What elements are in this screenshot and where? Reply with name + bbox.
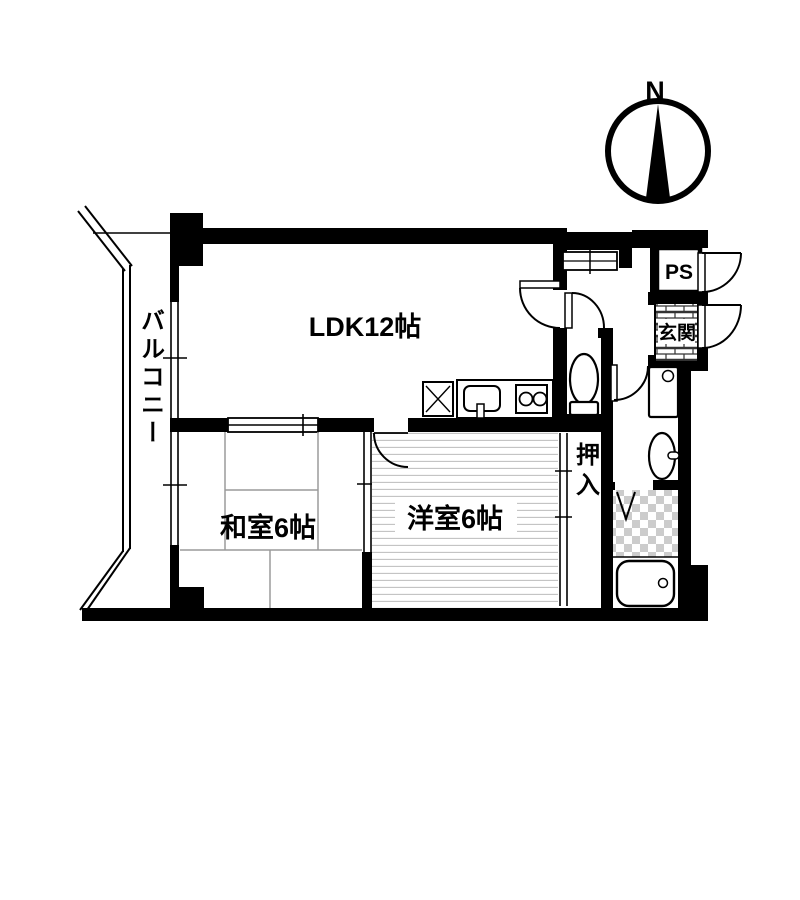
wall-segment — [170, 418, 228, 432]
wall-segment — [175, 228, 567, 244]
wall-segment — [553, 328, 567, 418]
wall-segment — [632, 230, 708, 248]
washing-machine-icon — [649, 367, 678, 417]
stove-icon — [516, 385, 547, 413]
toilet-icon — [570, 354, 598, 415]
door-leaf — [698, 253, 705, 292]
ldk-label: LDK12帖 — [309, 312, 422, 342]
floor-plan-svg: N バルコニー — [0, 0, 800, 900]
wall-segment — [678, 362, 691, 565]
door-leaf — [698, 305, 705, 348]
wall-segment — [408, 418, 567, 432]
youshitsu-label: 洋室6帖 — [407, 503, 503, 534]
wall-segment — [318, 418, 374, 432]
sliding-door-icon — [228, 414, 318, 436]
oshiire-label: 押入 — [572, 442, 600, 502]
wall-segment — [170, 266, 179, 302]
shoe-closet — [563, 248, 617, 274]
genkan-label: 玄関 — [658, 321, 696, 344]
faucet-icon — [477, 404, 484, 418]
door-leaf — [565, 293, 572, 328]
washitsu-label: 和室6帖 — [220, 512, 316, 543]
door-leaf — [520, 281, 560, 288]
wall-segment — [601, 482, 615, 492]
wall-segment — [170, 545, 179, 612]
balcony-label: バルコニー — [137, 308, 164, 448]
wall-segment — [619, 232, 632, 268]
floor-plan-page: N バルコニー — [0, 0, 800, 900]
door-leaf — [611, 365, 617, 401]
checker-floor — [613, 490, 678, 557]
wall-segment — [82, 608, 708, 621]
kitchen — [423, 380, 553, 418]
bathtub-icon — [617, 561, 674, 606]
ps-label: PS — [665, 261, 693, 284]
wall-segment — [678, 565, 708, 618]
